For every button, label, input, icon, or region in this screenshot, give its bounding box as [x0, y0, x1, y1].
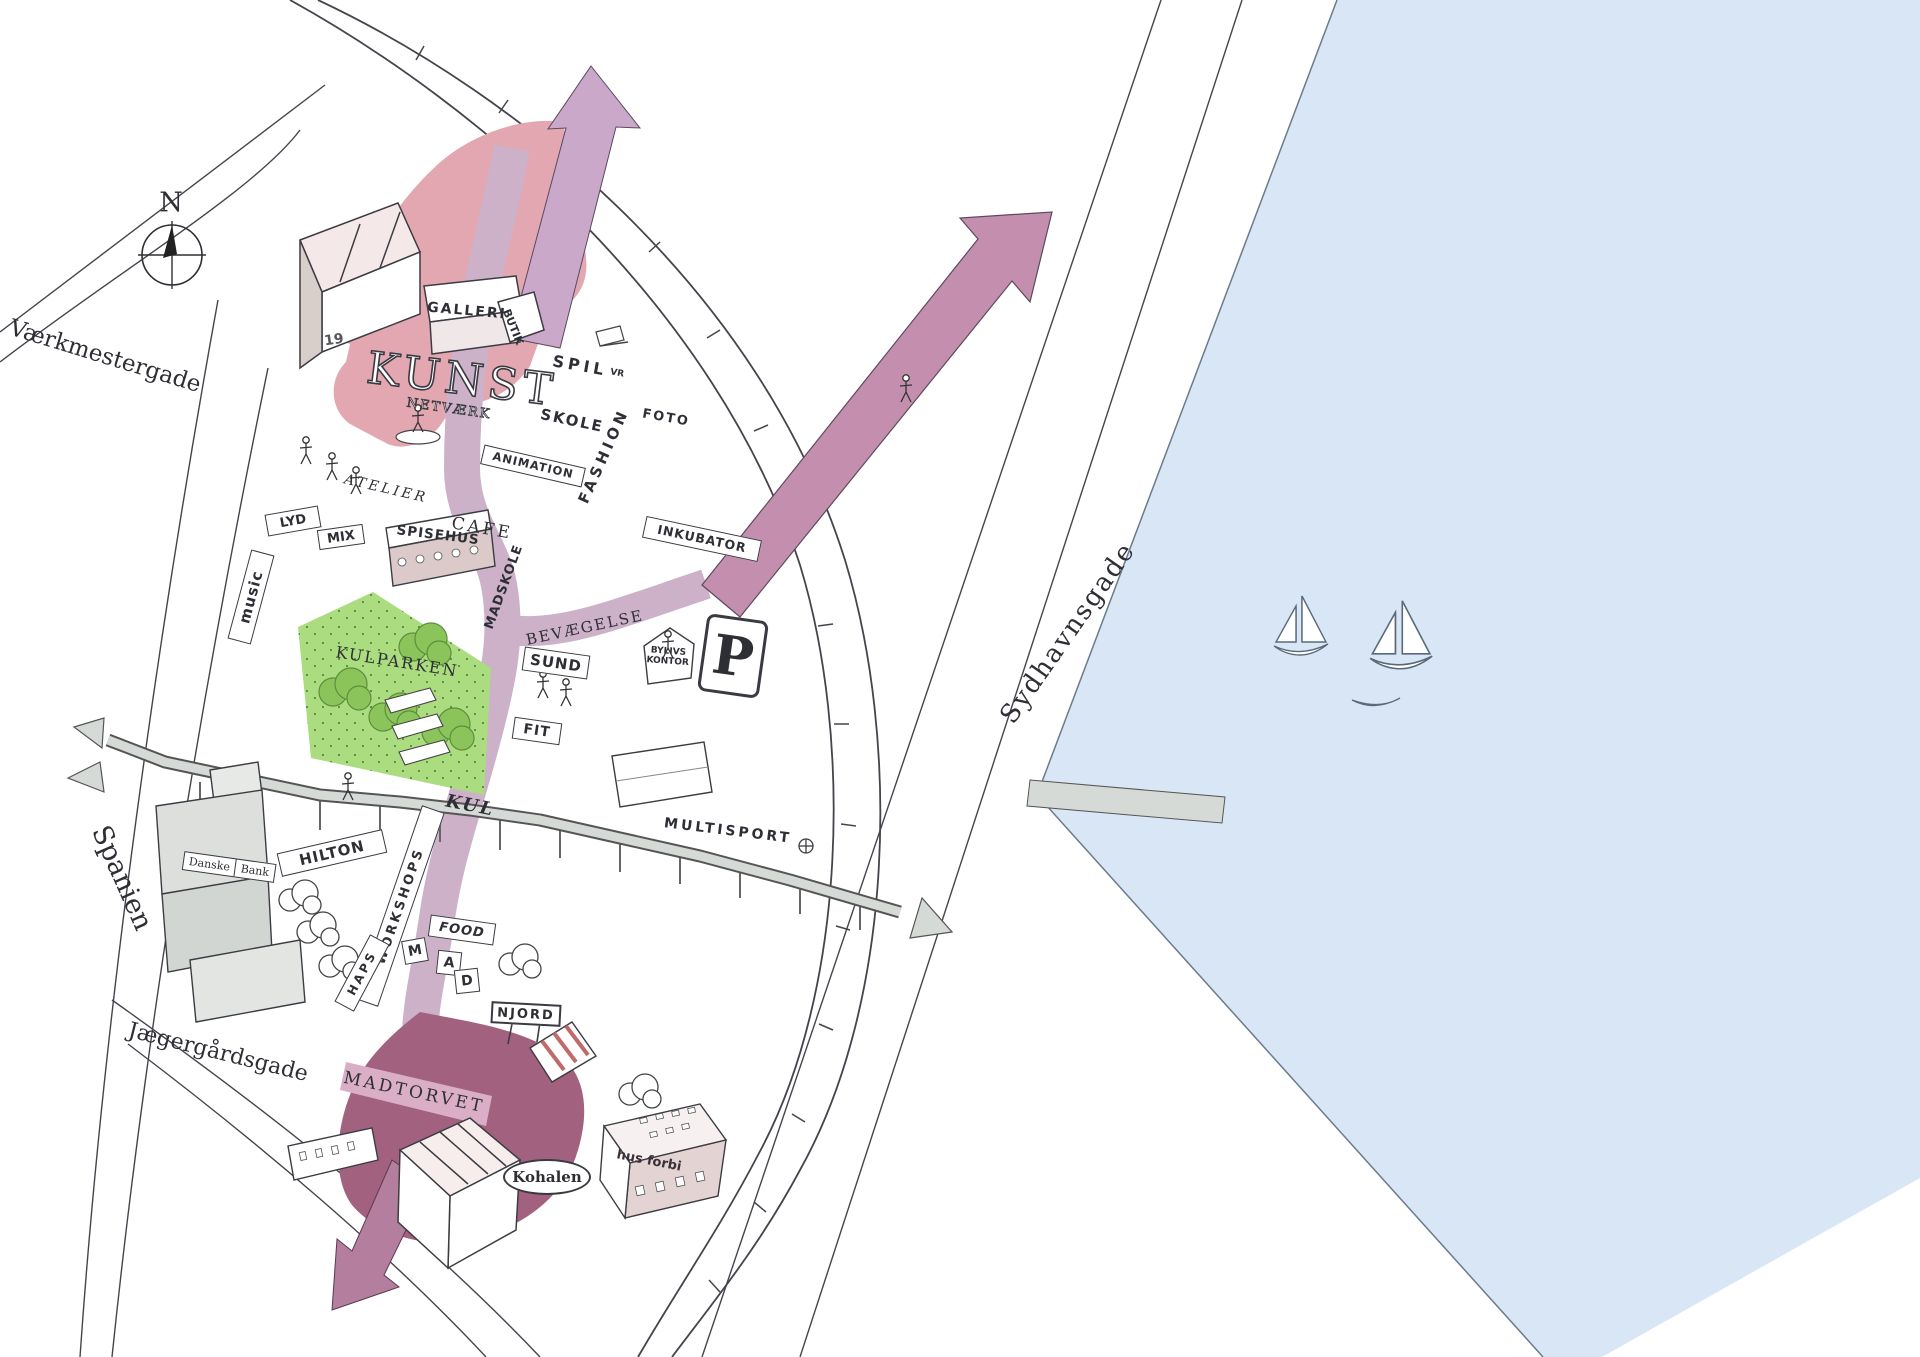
building-number-label: 19 — [323, 332, 344, 349]
laptop-icon — [596, 326, 628, 346]
place-sign-njord: NJORD — [490, 1001, 561, 1027]
multisport-court — [612, 742, 712, 807]
place-label-bylivs-kontor: BYLIVS KONTOR — [646, 645, 690, 669]
parking-sign: P — [697, 613, 769, 699]
kulparken-area — [298, 592, 491, 795]
illustrated-district-map: Værkmestergade Spanien Jægergårdsgade Sy… — [0, 0, 1920, 1357]
letter-cube-m: M — [401, 937, 429, 965]
walkway-arrow-right-icon — [910, 898, 952, 938]
stage-oval — [396, 430, 440, 444]
walkway-arrow-left-icon — [68, 762, 104, 792]
multisport-wheel-icon — [799, 839, 813, 853]
map-artwork — [0, 0, 1920, 1357]
harbor-water — [1027, 0, 1920, 1357]
letter-cube-d: D — [454, 968, 480, 994]
compass-north-label: N — [159, 190, 183, 217]
compass-rose-icon — [138, 221, 206, 289]
walkway-arrow-left-icon — [74, 718, 104, 748]
place-sign-kohalen: Kohalen — [503, 1159, 591, 1195]
